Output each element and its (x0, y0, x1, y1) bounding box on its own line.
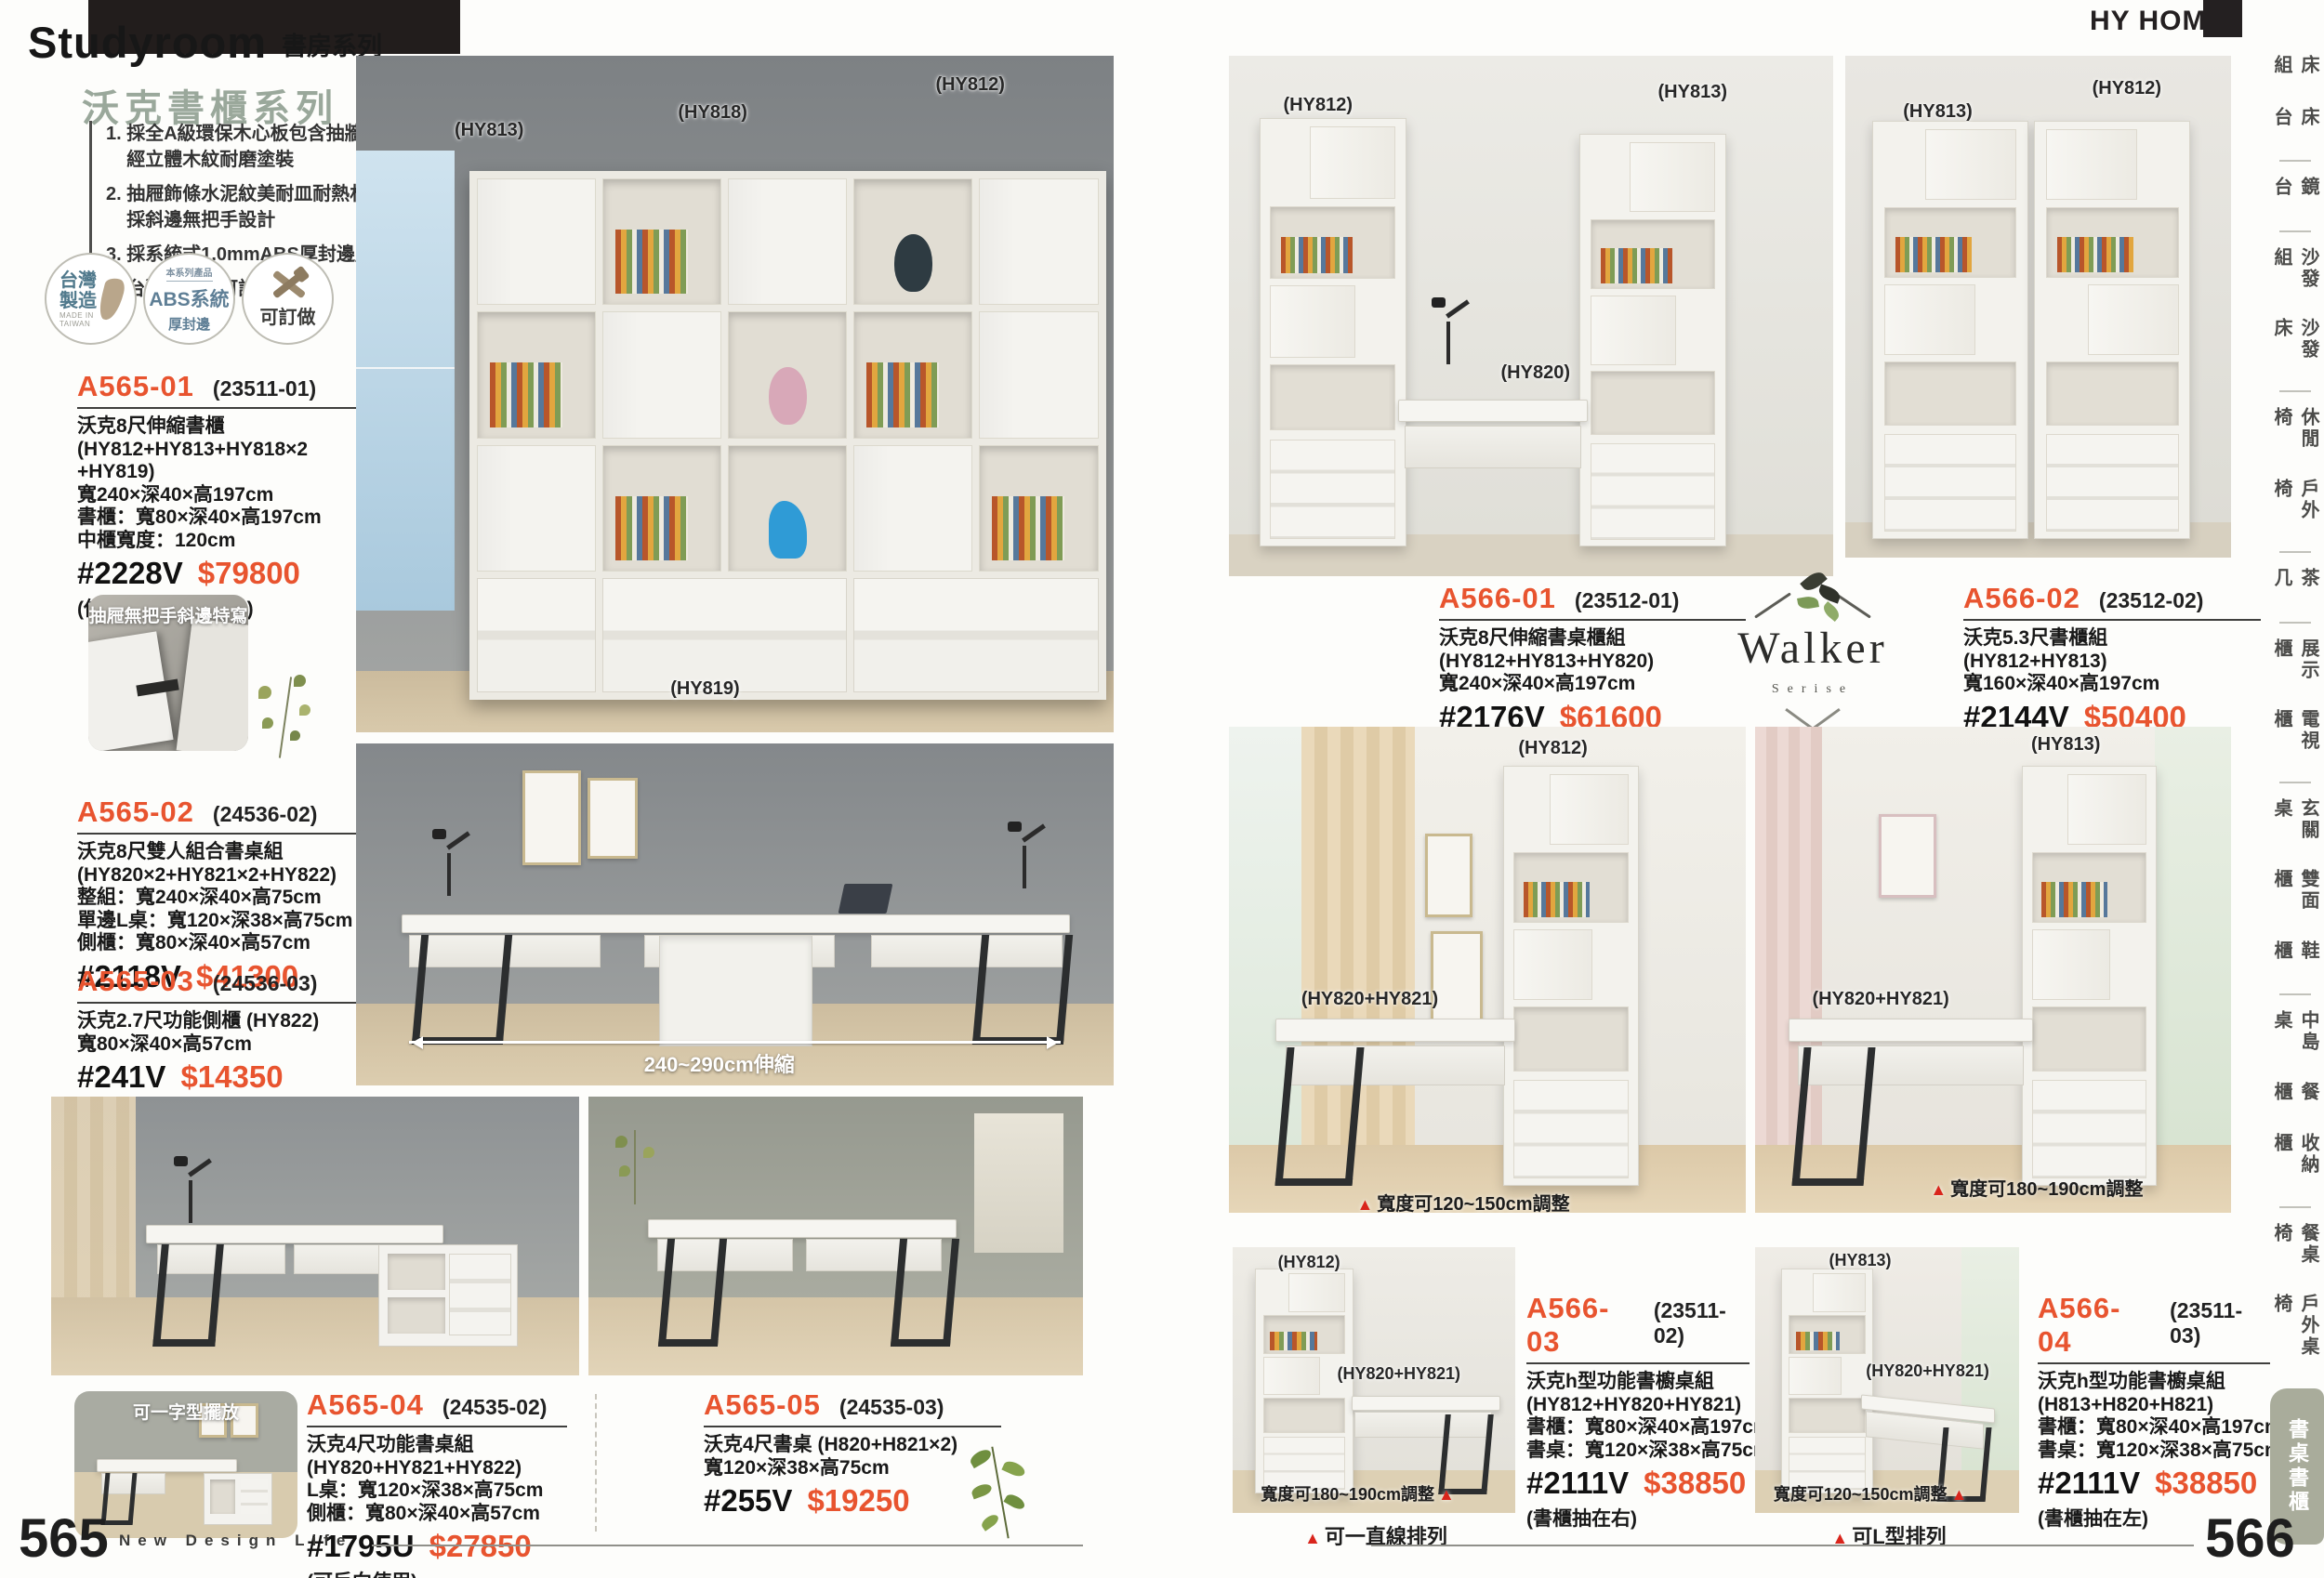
shelf-door (979, 311, 1098, 438)
sidebar-item-tv-cabinet: 電視櫃 (2268, 709, 2322, 767)
shelf-open-books (477, 311, 596, 438)
shelf-door (979, 178, 1098, 305)
sidebar-divider (2279, 160, 2311, 162)
product-specs: 沃克h型功能書櫥桌組 (H813+H820+H821) 書櫃：寬80×深40×高… (2038, 1371, 2270, 1462)
label-hy813: (HY813) (455, 120, 523, 141)
product-sku: #241V (77, 1059, 165, 1095)
desk-top (1789, 1019, 2033, 1043)
product-specs: 沃克8尺伸縮書櫃 (HY812+HY813+HY818×2 +HY819) 寬2… (77, 415, 356, 552)
plant-sprig-decoration (253, 669, 318, 762)
label-hy812: (HY812) (2093, 78, 2161, 99)
product-a566-02: A566-02 (23512-02) 沃克5.3尺書櫃組 (HY812+HY81… (1963, 582, 2261, 735)
shelf-door (602, 311, 721, 438)
label-hy812: (HY812) (1284, 95, 1353, 116)
desk-lamp (1023, 846, 1026, 888)
product-note: (書櫃抽在右) (1526, 1504, 1750, 1532)
wall-art (588, 778, 639, 859)
tagline: New Design Life (119, 1532, 352, 1550)
red-triangle-icon: ▲ (1353, 1195, 1377, 1213)
product-specs: 沃克8尺伸縮書桌櫃組 (HY812+HY813+HY820) 寬240×深40×… (1439, 627, 1746, 696)
page-title-en: Studyroom (28, 17, 267, 68)
window-greenery (2155, 727, 2231, 1145)
width-adjust-caption: 寬度可180~190cm調整▲ (1261, 1481, 1458, 1506)
sidebar-divider (2279, 993, 2311, 995)
photo-5-3ft-bookcase: (HY813) (HY812) (1845, 56, 2231, 558)
cabinet-side-panel (177, 619, 248, 751)
product-a565-01: A565-01 (23511-01) 沃克8尺伸縮書櫃 (HY812+HY813… (77, 370, 356, 622)
shelf-tower-hy813 (1872, 121, 2028, 539)
wall-art (1431, 931, 1483, 1024)
label-hy820-hy821: (HY820+HY821) (1337, 1364, 1460, 1384)
shelf-open-decor (728, 311, 847, 438)
desk-metal-leg (658, 1239, 727, 1347)
footer-rule-left (372, 1545, 1083, 1546)
curtain (51, 1097, 136, 1297)
desk-top (1352, 1396, 1500, 1411)
product-price: $27850 (429, 1529, 532, 1564)
badge-abs-sub: 厚封邊 (168, 314, 210, 334)
product-price: $38850 (2155, 1466, 2257, 1501)
extension-dimension-text: 240~290cm伸縮 (644, 1048, 795, 1078)
desk-metal-leg (891, 1239, 959, 1347)
brand-logo-square (2203, 0, 2242, 37)
walker-subtitle: Serise (1772, 682, 1854, 697)
sidebar-item-desks-bookcases: 書桌書櫃 (2282, 1418, 2312, 1515)
badge-custom-label: 可訂做 (260, 302, 316, 329)
shelf-open-globe (853, 178, 972, 305)
walker-name: Walker (1737, 626, 1887, 671)
label-hy820: (HY820) (1501, 362, 1570, 384)
product-sku: #2228V (77, 556, 183, 591)
shelf-open-books (602, 178, 721, 305)
window (974, 1113, 1063, 1253)
product-id: A565-03 (77, 965, 194, 998)
sidebar-divider (2279, 230, 2311, 232)
shelf-tower (1503, 766, 1640, 1186)
sidebar-item-tea-table: 茶几 (2268, 568, 2322, 607)
badge-taiwan-line1: 台灣 (59, 270, 97, 291)
red-triangle-icon: ▲ (1434, 1485, 1459, 1504)
desk-metal-leg (412, 935, 512, 1045)
badge-abs-main: ABS系統 (149, 284, 229, 312)
product-code: (24535-03) (839, 1395, 944, 1420)
product-id: A565-04 (307, 1388, 424, 1422)
photo-room-120-150: (HY812) (HY820+HY821) ▲寬度可120~150cm調整 (1229, 727, 1746, 1213)
window (356, 151, 455, 611)
shelf-door (853, 445, 972, 572)
shelf-open-books (853, 311, 972, 438)
catalog-spread: Studyroom 書房系列 HY HOME 沃克書櫃系列 1. 採全A級環保木… (0, 0, 2324, 1578)
desk-metal-leg (152, 1244, 224, 1347)
sidebar-divider (2279, 551, 2311, 553)
side-cabinet (378, 1244, 518, 1347)
dashed-divider (595, 1394, 597, 1532)
shelf-tower-hy812 (1260, 118, 1406, 546)
label-hy813: (HY813) (1829, 1251, 1892, 1270)
product-id: A566-04 (2038, 1292, 2151, 1359)
bookshelf-unit (469, 171, 1105, 700)
product-id: A566-02 (1963, 582, 2080, 615)
product-code: (24536-03) (213, 971, 318, 996)
sidebar-item-sofa-bed: 沙發床 (2268, 318, 2322, 375)
sidebar-item-vanity: 鏡台 (2268, 177, 2322, 216)
desk-top (97, 1459, 237, 1473)
width-adjust-caption: 寬度可120~150cm調整▲ (1774, 1481, 1971, 1506)
plant-decoration (608, 1124, 664, 1208)
badge-abs-top: 本系列產品 (166, 265, 213, 282)
desk-top (648, 1219, 957, 1238)
product-id: A565-05 (704, 1388, 821, 1422)
detail-caption: 抽屜無把手斜邊特寫 (88, 602, 248, 627)
sidebar-item-outdoor-chair: 戶外椅 (2268, 479, 2322, 536)
window-mullion (356, 367, 455, 369)
shelf-door (477, 445, 596, 572)
product-code: (23511-02) (1654, 1298, 1750, 1348)
photo-straight-arrangement: (HY812) (HY820+HY821) 寬度可180~190cm調整▲ (1233, 1247, 1515, 1513)
sidebar-item-dining-cabinet: 餐櫃 (2268, 1082, 2322, 1121)
desk-center-cabinet (659, 935, 812, 1046)
desk-metal-leg (972, 935, 1073, 1045)
product-code: (24536-02) (213, 802, 318, 827)
sidebar-item-storage-cabinet: 收納櫃 (2268, 1133, 2322, 1190)
footer-rule-right (1371, 1545, 2194, 1546)
shelf-tower-hy812 (2034, 121, 2190, 539)
walker-series-logo: Walker Serise (1715, 572, 1910, 730)
label-hy813: (HY813) (2031, 734, 2100, 756)
desk-top (1275, 1019, 1515, 1043)
product-specs: 沃克h型功能書櫥桌組 (HY812+HY820+HY821) 書櫃：寬80×深4… (1526, 1371, 1750, 1462)
wall-art (1425, 834, 1472, 917)
photo-4ft-desk (588, 1097, 1083, 1375)
sidebar-item-display-cabinet: 展示櫃 (2268, 638, 2322, 696)
laptop (838, 884, 892, 914)
shelf-door (728, 178, 847, 305)
shelf-tower (1781, 1269, 1873, 1493)
shelf-drawer (602, 578, 847, 692)
photo-drawer-detail: 抽屜無把手斜邊特寫 (88, 595, 248, 751)
product-a566-04: A566-04 (23511-03) 沃克h型功能書櫥桌組 (H813+H820… (2038, 1292, 2270, 1532)
shelf-door (477, 178, 596, 305)
product-code: (23511-03) (2170, 1298, 2270, 1348)
sidebar-item-double-sided-cabinet: 雙面櫃 (2268, 869, 2322, 927)
label-hy820-hy821: (HY820+HY821) (1812, 989, 1948, 1010)
extension-dimension-arrow (409, 1041, 1061, 1044)
sidebar-item-dining-set: 餐桌椅 (2268, 1223, 2322, 1281)
sidebar-divider (2279, 782, 2311, 783)
product-specs: 沃克2.7尺功能側櫃 (HY822) 寬80×深40×高57cm (77, 1010, 365, 1056)
product-specs: 沃克8尺雙人組合書桌組 (HY820×2+HY821×2+HY822) 整組：寬… (77, 841, 365, 955)
badge-taiwan-line2: 製造 (59, 291, 97, 311)
product-a566-03: A566-03 (23511-02) 沃克h型功能書櫥桌組 (HY812+HY8… (1526, 1292, 1750, 1532)
label-hy813: (HY813) (1903, 101, 1972, 123)
sidebar-item-bed-set: 床組 (2268, 55, 2322, 94)
badge-customizable: 可訂做 (242, 253, 334, 345)
sidebar-item-sofa-set: 沙發組 (2268, 247, 2322, 305)
certification-badges: 台灣 製造 MADE IN TAIWAN 本系列產品 ABS系統 厚封邊 可訂做 (45, 253, 334, 345)
desk-metal-leg (1274, 1047, 1364, 1186)
product-price: $79800 (198, 556, 300, 591)
tools-icon (267, 269, 310, 300)
desk-metal-leg (1792, 1047, 1876, 1186)
shelf-open-horse (728, 445, 847, 572)
product-code: (23512-01) (1575, 588, 1680, 613)
sidebar-item-outdoor-dining: 戶外桌椅 (2268, 1294, 2322, 1371)
leaf-decoration (962, 1442, 1037, 1545)
shelf-open-books (602, 445, 721, 572)
product-code: (23512-02) (2099, 588, 2204, 613)
product-specs: 沃克4尺功能書桌組 (HY820+HY821+HY822) L桌：寬120×深3… (307, 1434, 567, 1525)
desk-top (1398, 400, 1588, 422)
sidebar-item-bed-base: 床台 (2268, 107, 2322, 146)
desk-lamp (447, 853, 451, 896)
product-a565-05: A565-05 (24535-03) 沃克4尺書桌 (H820+H821×2) … (704, 1388, 1001, 1519)
shelf-open-books (979, 445, 1098, 572)
red-triangle-icon: ▲ (1301, 1529, 1325, 1547)
badge-taiwan-sub2: TAIWAN (59, 320, 97, 328)
sidebar-item-island-table: 中島桌 (2268, 1010, 2322, 1068)
label-hy812: (HY812) (1518, 738, 1587, 759)
width-adjust-caption: ▲寬度可180~190cm調整 (1926, 1174, 2143, 1201)
photo-desk-bookcase-combo: (HY812) (HY813) (HY820) (1229, 56, 1833, 576)
sidebar-item-lounge-chair: 休閒椅 (2268, 407, 2322, 465)
photo-room-180-190: (HY813) (HY820+HY821) ▲寬度可180~190cm調整 (1755, 727, 2231, 1213)
inline-caption: 可一字型擺放 (74, 1399, 297, 1424)
product-specs: 沃克4尺書桌 (H820+H821×2) 寬120×深38×高75cm (704, 1434, 1001, 1479)
product-sku: #255V (704, 1483, 792, 1519)
page-number-right: 566 (2205, 1507, 2295, 1570)
width-adjust-caption: ▲寬度可120~150cm調整 (1353, 1189, 1569, 1213)
label-hy818: (HY818) (678, 102, 746, 124)
product-price: $14350 (180, 1059, 283, 1095)
shelf-drawer (853, 578, 1098, 692)
walker-leaf-icon (1757, 572, 1868, 626)
red-triangle-icon: ▲ (1947, 1485, 1971, 1504)
shelf-tower-hy813 (1579, 134, 1726, 546)
page-number-left: 565 (19, 1507, 109, 1570)
product-code: (23511-01) (213, 376, 316, 401)
photo-double-desk: 240~290cm伸縮 (356, 743, 1114, 1085)
page-title: Studyroom 書房系列 (28, 17, 382, 68)
badge-made-in-taiwan: 台灣 製造 MADE IN TAIWAN (45, 253, 137, 345)
red-triangle-icon: ▲ (1926, 1180, 1950, 1199)
sidebar-divider (2279, 1206, 2311, 1208)
product-id: A566-03 (1526, 1292, 1635, 1359)
category-sidebar: 床組 床台 鏡台 沙發組 沙發床 休閒椅 戶外椅 茶几 展示櫃 電視櫃 玄關桌 … (2266, 48, 2324, 1377)
side-cabinet (204, 1473, 272, 1525)
product-a565-03: A565-03 (24536-03) 沃克2.7尺功能側櫃 (HY822) 寬8… (77, 965, 365, 1095)
taiwan-island-icon (97, 276, 126, 322)
label-hy820-hy821: (HY820+HY821) (1866, 1361, 1989, 1381)
sidebar-divider (2279, 390, 2311, 392)
desk-top (146, 1225, 443, 1243)
badge-taiwan-sub1: MADE IN (59, 311, 97, 320)
photo-l-arrangement: (HY813) (HY820+HY821) 寬度可120~150cm調整▲ (1755, 1247, 2019, 1513)
wall-art (522, 770, 581, 865)
shelf-drawer (477, 578, 596, 692)
product-specs: 沃克5.3尺書櫃組 (HY812+HY813) 寬160×深40×高197cm (1963, 627, 2261, 696)
label-hy813: (HY813) (1658, 82, 1727, 103)
desk-lamp (1446, 322, 1450, 364)
badge-abs-system: 本系列產品 ABS系統 厚封邊 (143, 253, 235, 345)
product-note: (可反向使用) (307, 1567, 567, 1578)
label-hy812: (HY812) (935, 74, 1004, 96)
wall-art (1879, 814, 1936, 898)
label-hy812: (HY812) (1278, 1253, 1340, 1272)
product-sku: #2111V (2038, 1466, 2140, 1501)
product-code: (24535-02) (442, 1395, 548, 1420)
label-hy820-hy821: (HY820+HY821) (1301, 989, 1438, 1010)
shelf-tower (2022, 766, 2157, 1186)
product-sku: #2111V (1526, 1466, 1629, 1501)
photo-main-bookshelf: (HY813) (HY818) (HY812) (HY819) (356, 56, 1114, 732)
desk-drawer (1405, 426, 1582, 469)
sidebar-item-entry-table: 玄關桌 (2268, 798, 2322, 856)
sidebar-divider (2279, 622, 2311, 624)
desk-top (402, 914, 1070, 933)
product-id: A565-01 (77, 370, 194, 403)
product-price: $38850 (1644, 1466, 1746, 1501)
product-id: A565-02 (77, 796, 194, 829)
product-price: $19250 (807, 1483, 909, 1519)
sidebar-item-shoe-cabinet: 鞋櫃 (2268, 940, 2322, 980)
product-id: A566-01 (1439, 582, 1556, 615)
desk-lamp (189, 1180, 192, 1223)
photo-rotating-desk (51, 1097, 579, 1375)
label-hy819: (HY819) (670, 678, 739, 700)
